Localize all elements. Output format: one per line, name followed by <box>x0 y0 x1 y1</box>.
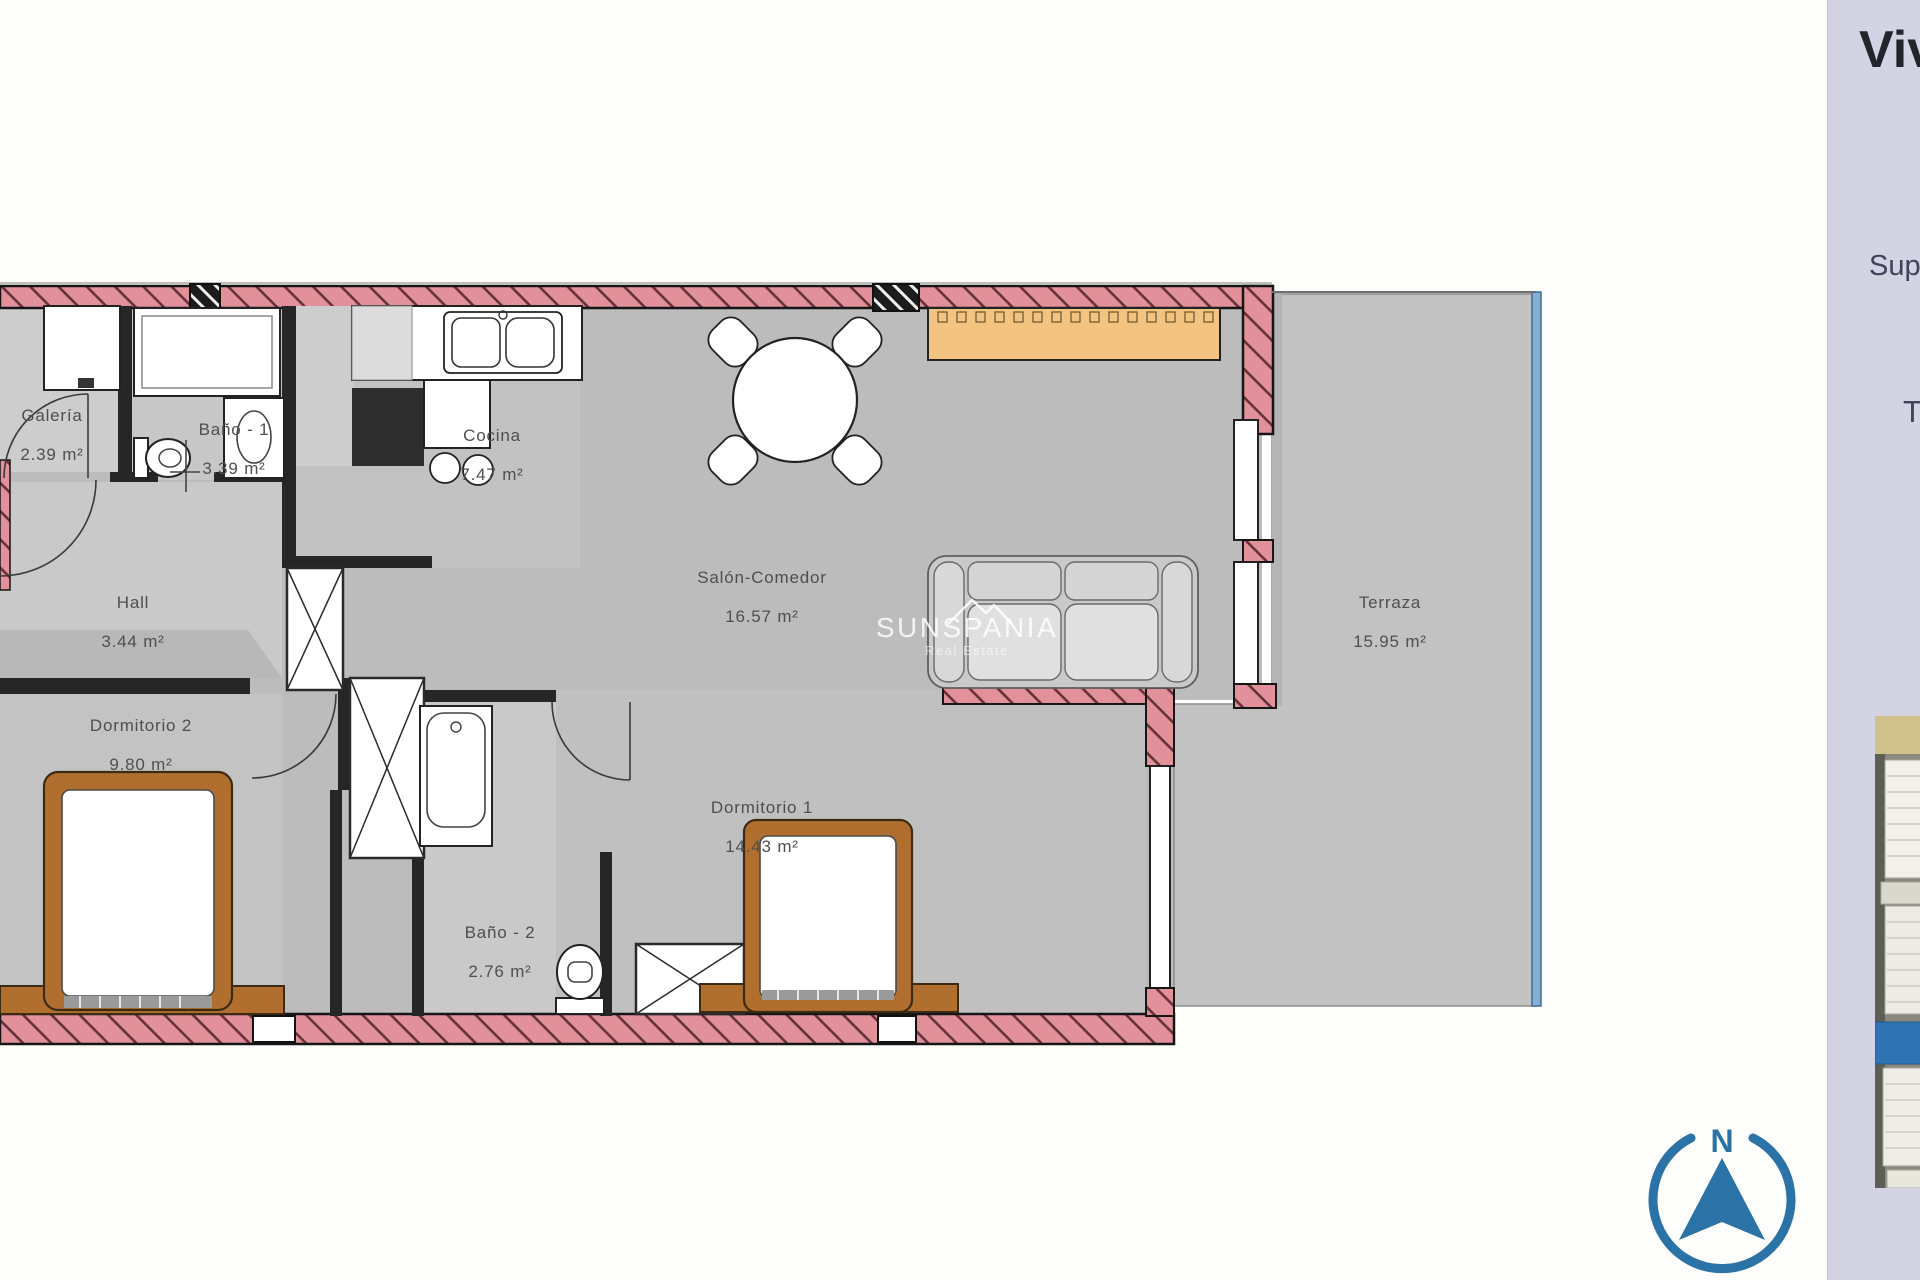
fridge <box>352 388 424 466</box>
floor-plan <box>0 0 1920 1280</box>
column <box>873 284 919 311</box>
toilet <box>557 945 603 999</box>
room-label-bano2: Baño - 22.76 m² <box>465 913 536 991</box>
window <box>253 1016 295 1042</box>
north-compass-icon: N <box>1645 1120 1801 1280</box>
panel-line: T <box>1903 394 1920 430</box>
column <box>190 284 220 310</box>
window <box>1150 766 1170 988</box>
shower-tray <box>134 308 280 396</box>
site-plan-thumbnail <box>1875 716 1920 1188</box>
brochure-page: Galería2.39 m² Baño - 13.39 m² Cocina7.4… <box>0 0 1920 1280</box>
highlighted-floor-band <box>1875 1022 1920 1064</box>
window <box>878 1016 916 1042</box>
north-arrow <box>1679 1158 1765 1240</box>
panel-subtitle: Sup <box>1869 250 1920 283</box>
bathtub <box>420 706 492 846</box>
room-label-galeria: Galería2.39 m² <box>20 396 83 474</box>
sofa <box>928 556 1198 688</box>
room-label-dorm1: Dormitorio 114.43 m² <box>711 788 813 866</box>
room-label-terraza: Terraza15.95 m² <box>1353 583 1427 661</box>
terrace-door <box>1234 420 1258 540</box>
info-panel: Viv Sup T <box>1827 0 1920 1280</box>
room-label-salon: Salón-Comedor16.57 m² <box>697 558 826 636</box>
kitchen-sink <box>444 312 562 373</box>
room-label-dorm2: Dormitorio 29.80 m² <box>90 706 192 784</box>
room-label-hall: Hall3.44 m² <box>101 583 164 661</box>
terrace-door <box>1234 562 1258 686</box>
bottom-wall <box>0 1014 1174 1044</box>
compass-north-label: N <box>1710 1123 1733 1159</box>
room-label-bano1: Baño - 13.39 m² <box>199 410 270 488</box>
washing-machine <box>44 306 120 390</box>
stool <box>430 453 460 483</box>
room-label-cocina: Cocina7.47 m² <box>460 416 523 494</box>
glass-balustrade <box>1532 292 1541 1006</box>
panel-title: Viv <box>1859 20 1920 80</box>
